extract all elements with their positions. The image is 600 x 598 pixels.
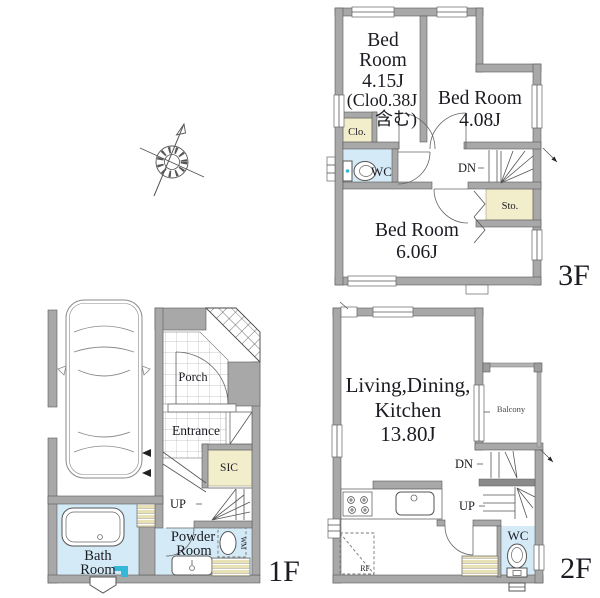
bath-vent-icon [90, 577, 116, 593]
louver-mat-2f [462, 556, 498, 576]
floor-label-1f: 1F [268, 555, 300, 588]
shoe-counter [230, 412, 252, 444]
ldk-name-line1: Living,Dining, [346, 373, 471, 397]
floor-label-2f: 2F [560, 552, 592, 585]
bedroom1-note-line2: 含む) [375, 109, 417, 130]
entrance-label: Entrance [172, 423, 220, 438]
stairs-down-label-3f: DN [458, 161, 476, 175]
porch-floor [163, 332, 228, 404]
floor-label-3f: 3F [558, 259, 590, 292]
powder-room-label-line2: Room [176, 543, 212, 559]
floor-plan-page: Bed Room 4.15J (Clo0.38J 含む) Bed Room 4.… [0, 0, 600, 598]
ldk-size: 13.80J [380, 422, 435, 446]
stairs-up-label-2f: UP [459, 499, 475, 513]
wc-door-2f [445, 526, 473, 555]
bathtub-icon [62, 508, 124, 546]
louver-mat-1f [212, 558, 250, 576]
bedroom2-size: 4.08J [459, 110, 501, 131]
ldk-name-line2: Kitchen [375, 398, 442, 422]
wc-label-3f: WC [371, 164, 392, 179]
floor-plan-1f: Porch Entrance SIC UP Powder Room Bath R… [48, 300, 300, 593]
washing-machine-label: WM [239, 537, 247, 551]
toilet-icon-2f [507, 544, 527, 591]
bath-room-label-line2: Room [80, 562, 116, 578]
bedroom1-name-line2: Room [359, 50, 407, 71]
sink-icon [396, 492, 434, 515]
bedroom3-size: 6.06J [396, 242, 438, 263]
bedroom3-name: Bed Room [375, 220, 459, 241]
stove-icon [343, 492, 372, 516]
bedroom1-note-line1: (Clo0.38J [347, 90, 418, 111]
stairs-up-label-1f: UP [170, 497, 186, 511]
wc-label-2f: WC [508, 528, 529, 543]
storage-label-3f: Sto. [502, 201, 519, 212]
louver-block-1f [137, 504, 155, 527]
closet-label-3f: Clo. [348, 127, 366, 138]
floor-plan-drawing: Bed Room 4.15J (Clo0.38J 含む) Bed Room 4.… [0, 0, 600, 598]
floor-plan-2f: Living,Dining, Kitchen 13.80J Balcony DN… [328, 302, 592, 591]
bedroom1-name-line1: Bed [367, 30, 399, 51]
compass-icon [140, 124, 204, 196]
balcony-label: Balcony [497, 404, 526, 414]
refrigerator-label: RF [360, 564, 370, 573]
bedroom1-size: 4.15J [362, 71, 404, 92]
bedroom2-name: Bed Room [438, 88, 522, 109]
stairs-down-label-2f: DN [455, 457, 473, 471]
kitchen-counter [341, 489, 442, 519]
sic-label: SIC [220, 462, 238, 474]
stairs-3f [489, 148, 557, 183]
bifold-door-icon [474, 191, 485, 243]
car-icon [58, 300, 150, 478]
porch-label: Porch [178, 370, 208, 384]
floor-plan-3f: Bed Room 4.15J (Clo0.38J 含む) Bed Room 4.… [327, 7, 590, 294]
